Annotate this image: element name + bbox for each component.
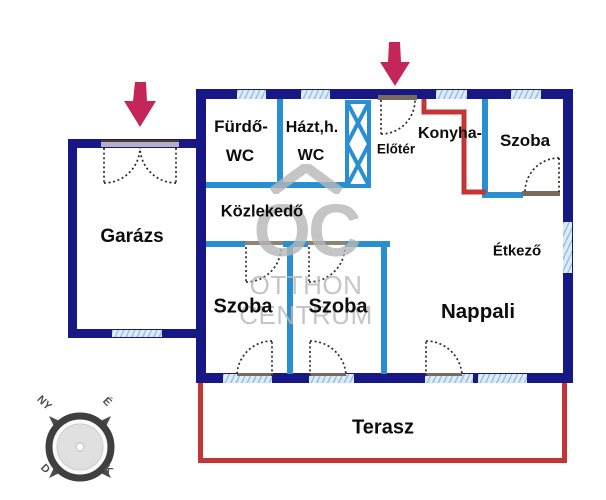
window	[237, 90, 266, 99]
partition-szoba-nappali	[381, 241, 387, 374]
room-label-hazt-wc: WC	[298, 147, 325, 165]
window	[112, 330, 162, 337]
room-label-terasz: Terasz	[352, 417, 414, 440]
room-label-szoba-middle: Szoba	[309, 296, 368, 319]
watermark-text-1: OTTHON	[239, 272, 373, 298]
terrace-door-lintel	[426, 373, 462, 376]
room-label-hazt: Házt,h.	[286, 119, 338, 137]
room-label-furdo-wc: WC	[226, 146, 254, 166]
entrance-door-lintel	[378, 95, 417, 100]
partition-szoba-topright-bottom	[482, 192, 523, 198]
window	[301, 90, 330, 99]
window	[478, 374, 527, 383]
floor-plan: OC OTTHON CENTRUM Fürdő- WC Házt,h. WC E…	[0, 0, 606, 500]
room-label-konyha: Konyha-	[418, 125, 482, 143]
door-lintel	[522, 191, 560, 196]
window	[436, 90, 467, 99]
compass-label-sw: D	[38, 462, 52, 476]
entrance-arrow-icon	[380, 42, 410, 86]
room-label-garazs: Garázs	[100, 226, 163, 248]
window	[563, 222, 572, 273]
terrace-door-lintel	[310, 373, 346, 376]
room-label-kozlekedo: Közlekedő	[221, 203, 304, 222]
garage-entrance-arrow-icon	[124, 82, 156, 127]
room-label-szoba-left: Szoba	[214, 296, 273, 319]
garage-door-lintel	[101, 140, 179, 147]
room-label-furdo: Fürdő-	[214, 117, 268, 137]
terrace-door-lintel	[237, 373, 273, 376]
partition-szoba-topright-left	[482, 99, 488, 198]
compass-label-ne: É	[100, 395, 114, 409]
compass-label-nw: NY	[34, 393, 53, 412]
room-label-szoba-top: Szoba	[500, 131, 550, 151]
window	[511, 90, 541, 99]
compass-label-se: K	[101, 463, 115, 477]
compass-rose-icon	[49, 416, 111, 478]
room-label-nappali: Nappali	[441, 300, 515, 324]
room-label-etkezo: Étkező	[493, 243, 541, 260]
room-label-eloter: Előtér	[377, 142, 415, 157]
